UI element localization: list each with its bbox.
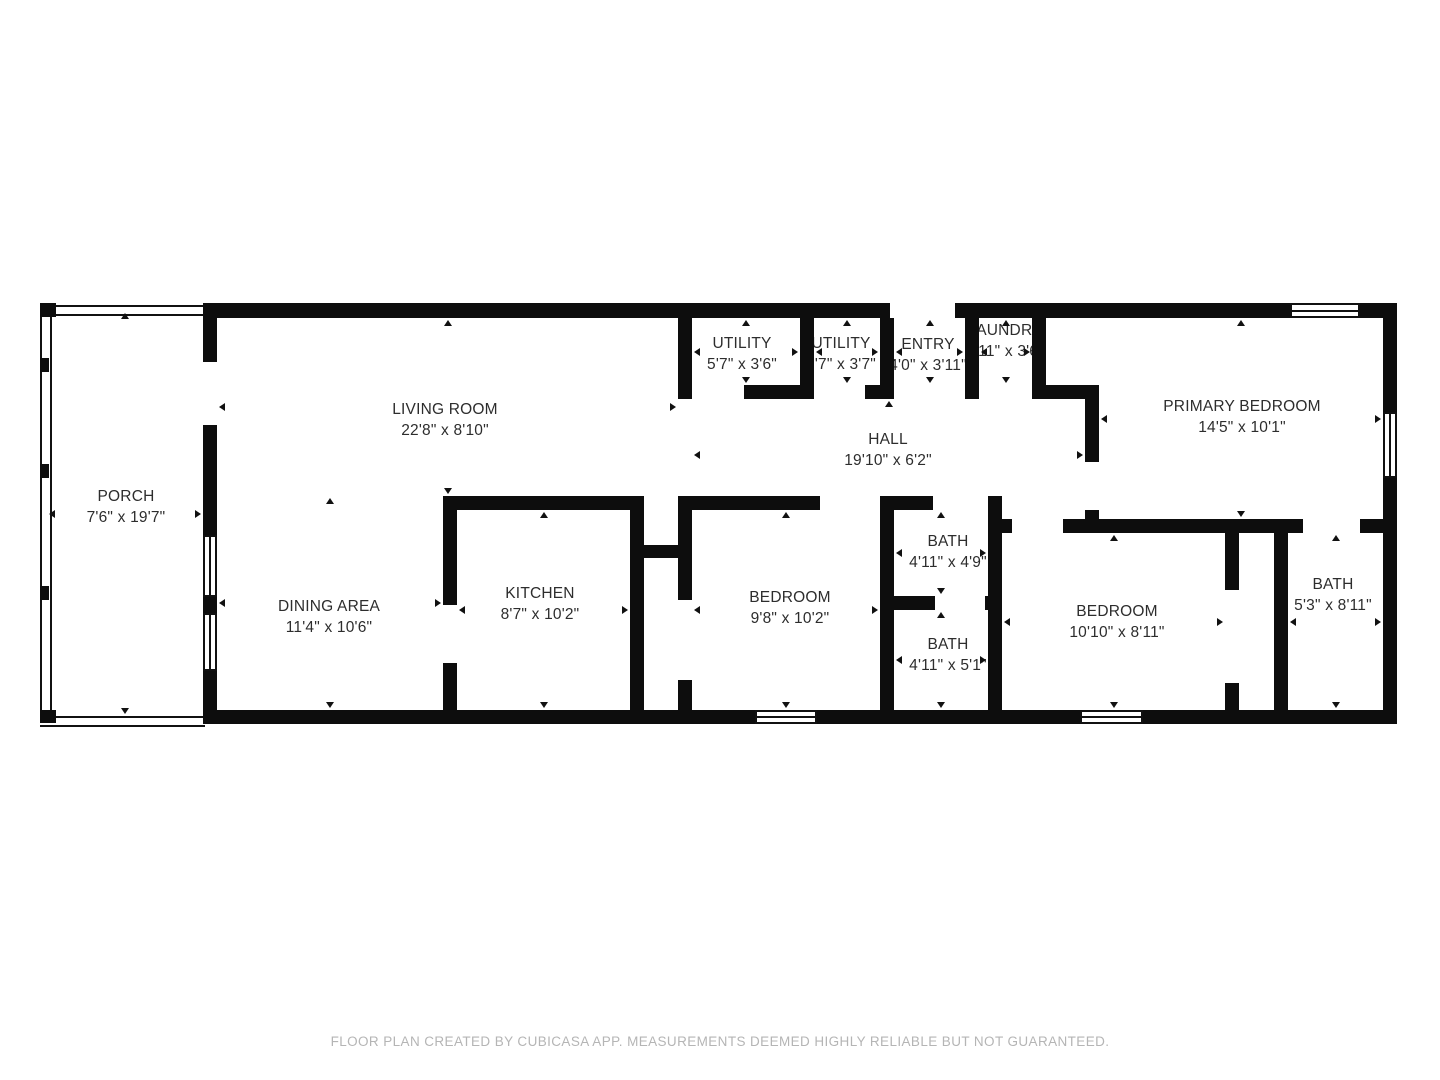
tick-right (980, 656, 986, 664)
tick-down (937, 588, 945, 594)
tick-down (1332, 702, 1340, 708)
room-name: KITCHEN (501, 583, 580, 604)
room-dimensions: 8'7" x 10'2" (501, 604, 580, 625)
room-dimensions: 7'6" x 19'7" (87, 507, 166, 528)
tick-up (1110, 535, 1118, 541)
window (1290, 303, 1360, 318)
wall (880, 318, 894, 399)
tick-left (694, 606, 700, 614)
tick-right (1024, 348, 1030, 356)
room-name: BATH (1294, 574, 1372, 595)
tick-down (843, 377, 851, 383)
tick-right (980, 549, 986, 557)
tick-down (444, 488, 452, 494)
tick-right (957, 348, 963, 356)
room-dimensions: 10'10" x 8'11" (1069, 622, 1164, 643)
wall (1225, 519, 1239, 590)
tick-up (926, 320, 934, 326)
porch-post (40, 586, 49, 600)
porch-wall (40, 716, 205, 727)
room-name: BEDROOM (1069, 601, 1164, 622)
room-label-bedroom-2: BEDROOM10'10" x 8'11" (1069, 601, 1164, 643)
tick-right (792, 348, 798, 356)
tick-up (885, 401, 893, 407)
room-dimensions: 22'8" x 8'10" (392, 420, 498, 441)
room-label-bedroom-1: BEDROOM9'8" x 10'2" (749, 587, 831, 629)
tick-down (1002, 377, 1010, 383)
wall (988, 496, 1002, 710)
wall (880, 496, 894, 710)
tick-left (219, 403, 225, 411)
tick-left (459, 606, 465, 614)
room-name: BEDROOM (749, 587, 831, 608)
wall (1085, 385, 1099, 462)
wall (678, 318, 692, 399)
tick-down (1110, 702, 1118, 708)
room-label-primary-bedroom: PRIMARY BEDROOM14'5" x 10'1" (1163, 396, 1320, 438)
wall (678, 496, 692, 600)
room-name: PORCH (87, 486, 166, 507)
tick-up (1237, 320, 1245, 326)
tick-up (742, 320, 750, 326)
room-name: BATH (909, 531, 987, 552)
tick-left (896, 549, 902, 557)
tick-right (1375, 415, 1381, 423)
room-dimensions: 14'5" x 10'1" (1163, 417, 1320, 438)
room-name: UTILITY (707, 333, 777, 354)
wall (894, 496, 933, 510)
tick-right (872, 606, 878, 614)
tick-down (782, 702, 790, 708)
tick-down (1237, 511, 1245, 517)
tick-right (1077, 451, 1083, 459)
tick-up (540, 512, 548, 518)
wall (443, 496, 457, 605)
wall (800, 318, 814, 399)
room-name: HALL (844, 429, 932, 450)
porch-post (40, 464, 49, 478)
tick-up (843, 320, 851, 326)
wall (817, 710, 1080, 724)
wall (205, 710, 755, 724)
tick-right (1375, 618, 1381, 626)
room-label-porch: PORCH7'6" x 19'7" (87, 486, 166, 528)
tick-left (1290, 618, 1296, 626)
tick-left (896, 348, 902, 356)
floor-plan: PORCH7'6" x 19'7"LIVING ROOM22'8" x 8'10… (0, 0, 1440, 1080)
room-name: BATH (909, 634, 987, 655)
window (755, 710, 817, 724)
tick-right (670, 403, 676, 411)
wall (205, 303, 890, 318)
room-dimensions: 4'0" x 3'11" (889, 355, 967, 376)
wall (678, 680, 692, 710)
wall (630, 496, 644, 710)
room-label-utility-1: UTILITY5'7" x 3'6" (707, 333, 777, 375)
room-name: PRIMARY BEDROOM (1163, 396, 1320, 417)
room-label-living-room: LIVING ROOM22'8" x 8'10" (392, 399, 498, 441)
tick-up (326, 498, 334, 504)
window (1383, 412, 1397, 478)
tick-down (742, 377, 750, 383)
wall (1002, 519, 1012, 533)
tick-right (622, 606, 628, 614)
wall (1032, 318, 1046, 399)
tick-up (1002, 320, 1010, 326)
room-dimensions: 5'7" x 3'6" (707, 354, 777, 375)
room-dimensions: 9'8" x 10'2" (749, 608, 831, 629)
tick-down (121, 708, 129, 714)
tick-left (694, 348, 700, 356)
window (203, 613, 217, 671)
tick-left (49, 510, 55, 518)
room-dimensions: 4'11" x 5'1" (909, 655, 987, 676)
floor-plan-page: PORCH7'6" x 19'7"LIVING ROOM22'8" x 8'10… (0, 0, 1440, 1080)
room-dimensions: 19'10" x 6'2" (844, 450, 932, 471)
room-label-kitchen: KITCHEN8'7" x 10'2" (501, 583, 580, 625)
wall (443, 496, 644, 510)
window (1080, 710, 1143, 724)
tick-right (1217, 618, 1223, 626)
wall (678, 496, 820, 510)
tick-right (435, 599, 441, 607)
room-dimensions: 3'7" x 3'7" (806, 354, 876, 375)
room-dimensions: 5'3" x 8'11" (1294, 595, 1372, 616)
tick-left (981, 348, 987, 356)
wall (203, 303, 217, 362)
wall (443, 663, 457, 710)
tick-right (195, 510, 201, 518)
wall (1383, 478, 1397, 724)
wall (203, 671, 217, 724)
wall (1085, 510, 1099, 533)
room-label-bath-3: BATH5'3" x 8'11" (1294, 574, 1372, 616)
tick-up (937, 512, 945, 518)
tick-down (926, 377, 934, 383)
wall (1383, 303, 1397, 412)
tick-up (121, 313, 129, 319)
wall (1274, 519, 1288, 710)
wall (1063, 519, 1303, 533)
footer-disclaimer: FLOOR PLAN CREATED BY CUBICASA APP. MEAS… (0, 1034, 1440, 1049)
room-label-dining-area: DINING AREA11'4" x 10'6" (278, 596, 380, 638)
room-dimensions: 11'4" x 10'6" (278, 617, 380, 638)
tick-left (1004, 618, 1010, 626)
tick-down (540, 702, 548, 708)
tick-down (326, 702, 334, 708)
tick-left (219, 599, 225, 607)
tick-up (782, 512, 790, 518)
tick-left (694, 451, 700, 459)
room-label-hall: HALL19'10" x 6'2" (844, 429, 932, 471)
room-name: LIVING ROOM (392, 399, 498, 420)
porch-post (40, 710, 56, 723)
room-label-bath-1: BATH4'11" x 4'9" (909, 531, 987, 573)
porch-post (40, 303, 56, 317)
wall (203, 597, 217, 613)
porch-post (40, 358, 49, 372)
tick-up (444, 320, 452, 326)
wall (1225, 683, 1239, 710)
wall (965, 318, 979, 399)
tick-up (1332, 535, 1340, 541)
room-label-bath-2: BATH4'11" x 5'1" (909, 634, 987, 676)
wall (955, 303, 1290, 318)
room-name: DINING AREA (278, 596, 380, 617)
wall (1143, 710, 1397, 724)
tick-left (816, 348, 822, 356)
tick-up (937, 612, 945, 618)
window (203, 535, 217, 597)
tick-left (896, 656, 902, 664)
room-dimensions: 4'11" x 4'9" (909, 552, 987, 573)
tick-left (1101, 415, 1107, 423)
wall (203, 425, 217, 535)
tick-right (872, 348, 878, 356)
tick-down (937, 702, 945, 708)
